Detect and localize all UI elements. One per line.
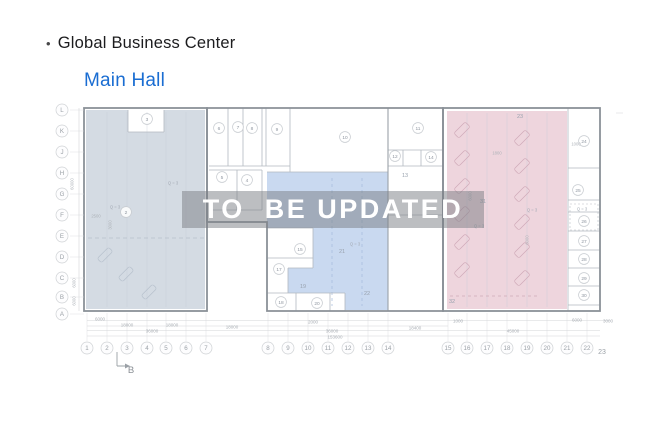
dimension-label: 6000 bbox=[72, 278, 77, 288]
grid-col-label: 9 bbox=[286, 345, 290, 352]
dimension-label: 18000 bbox=[226, 325, 239, 330]
dimension-label: 2000 bbox=[308, 320, 319, 325]
watermark-text: TO BE UPDATED bbox=[203, 194, 464, 225]
room-label: 25 bbox=[575, 188, 581, 194]
dimension-label: 1000 bbox=[453, 319, 464, 324]
dimension-label: 6000 bbox=[572, 318, 583, 323]
grid-row-label: D bbox=[60, 254, 65, 261]
grid-col-label: 21 bbox=[564, 345, 571, 352]
dimension-label: 36000 bbox=[146, 329, 159, 334]
room-label: 12 bbox=[392, 154, 398, 160]
dimension-label: 1000 bbox=[571, 142, 581, 147]
dimension-label: 6000 bbox=[95, 317, 106, 322]
room-label: 15 bbox=[297, 247, 303, 253]
grid-col-label: 7 bbox=[204, 345, 208, 352]
dimension-label: 45000 bbox=[507, 329, 520, 334]
room-label: 5 bbox=[221, 175, 224, 181]
dimension-label: 6000 bbox=[525, 235, 530, 245]
q-label: Q = 3 bbox=[350, 242, 361, 247]
grid-col-label: 11 bbox=[325, 345, 332, 352]
dimension-label: 3000 bbox=[603, 319, 614, 324]
grid-col-label: 15 bbox=[445, 345, 452, 352]
dimension-label: 36000 bbox=[326, 329, 339, 334]
grid-col-label: 17 bbox=[484, 345, 491, 352]
grid-col-label: 4 bbox=[145, 345, 149, 352]
dimension-label: 60000 bbox=[70, 178, 75, 190]
dimension-label: 153600 bbox=[327, 335, 343, 340]
room-label: 9 bbox=[276, 127, 279, 133]
page-root: • Global Business Center Main Hall bbox=[0, 0, 660, 440]
grid-row-label: J bbox=[60, 149, 63, 156]
room-label: 30 bbox=[581, 293, 587, 299]
room-label: 4 bbox=[246, 178, 249, 184]
q-label: Q = 3 bbox=[168, 181, 179, 186]
room-label: 10 bbox=[342, 135, 348, 141]
grid-row-label: G bbox=[60, 191, 65, 198]
grid-col-label: 23 bbox=[598, 349, 606, 356]
grid-row-label: C bbox=[60, 275, 65, 282]
room-label-plain: 32 bbox=[449, 299, 455, 305]
room-label-plain: 19 bbox=[300, 284, 306, 290]
grid-col-label: 14 bbox=[385, 345, 392, 352]
grid-col-label: 22 bbox=[584, 345, 591, 352]
grid-col-label: 8 bbox=[266, 345, 270, 352]
grid-col-label: 6 bbox=[184, 345, 188, 352]
room-label-plain: 23 bbox=[517, 114, 523, 120]
dimension-label: 18000 bbox=[121, 323, 134, 328]
section-marker-label: B bbox=[128, 365, 134, 376]
room-label: 28 bbox=[581, 257, 587, 263]
room-label: 18 bbox=[278, 300, 284, 306]
grid-col-label: 3 bbox=[125, 345, 129, 352]
grid-col-label: 19 bbox=[524, 345, 531, 352]
grid-col-label: 12 bbox=[345, 345, 352, 352]
grid-col-label: 16 bbox=[464, 345, 471, 352]
grid-col-label: 20 bbox=[544, 345, 551, 352]
room-label-plain: 13 bbox=[402, 173, 408, 179]
q-label: Q = 3 bbox=[110, 205, 121, 210]
room-label: 2 bbox=[125, 210, 128, 216]
grid-col-label: 13 bbox=[365, 345, 372, 352]
grid-col-label: 5 bbox=[164, 345, 168, 352]
grid-col-label: 2 bbox=[105, 345, 109, 352]
grid-col-label: 1 bbox=[85, 345, 89, 352]
room-label: 8 bbox=[251, 126, 254, 132]
grid-row-label: L bbox=[60, 107, 64, 114]
grid-row-label: E bbox=[60, 233, 64, 240]
room-label: 11 bbox=[416, 126, 421, 132]
dimension-label: 3000 bbox=[108, 220, 113, 230]
room-label: 14 bbox=[428, 155, 434, 161]
room-label: 24 bbox=[581, 139, 587, 145]
room-label-plain: 21 bbox=[339, 249, 345, 255]
dimension-label: 18400 bbox=[409, 326, 422, 331]
room-label: 27 bbox=[581, 239, 587, 245]
grid-row-label: F bbox=[60, 212, 64, 219]
room-label: 7 bbox=[237, 125, 240, 131]
room-label: 20 bbox=[314, 301, 320, 307]
dimension-label: 18000 bbox=[166, 323, 179, 328]
grid-col-label: 10 bbox=[305, 345, 312, 352]
dimension-label: 1800 bbox=[492, 151, 502, 156]
grid-row-label: B bbox=[60, 294, 64, 301]
dimension-label: 6000 bbox=[72, 296, 77, 306]
room-label: 26 bbox=[581, 219, 587, 225]
room-label: 3 bbox=[146, 117, 149, 123]
room-label: 6 bbox=[218, 126, 221, 132]
room-label: 17 bbox=[276, 267, 282, 273]
grid-col-label: 18 bbox=[504, 345, 511, 352]
q-label: Q = 3 bbox=[527, 208, 538, 213]
grid-row-label: H bbox=[60, 170, 64, 177]
room-label: 29 bbox=[581, 276, 587, 282]
room-label-plain: 22 bbox=[364, 291, 370, 297]
dimension-label: 2500 bbox=[91, 214, 101, 219]
q-label: Q = 3 bbox=[577, 207, 588, 212]
watermark: TO BE UPDATED bbox=[182, 191, 484, 228]
